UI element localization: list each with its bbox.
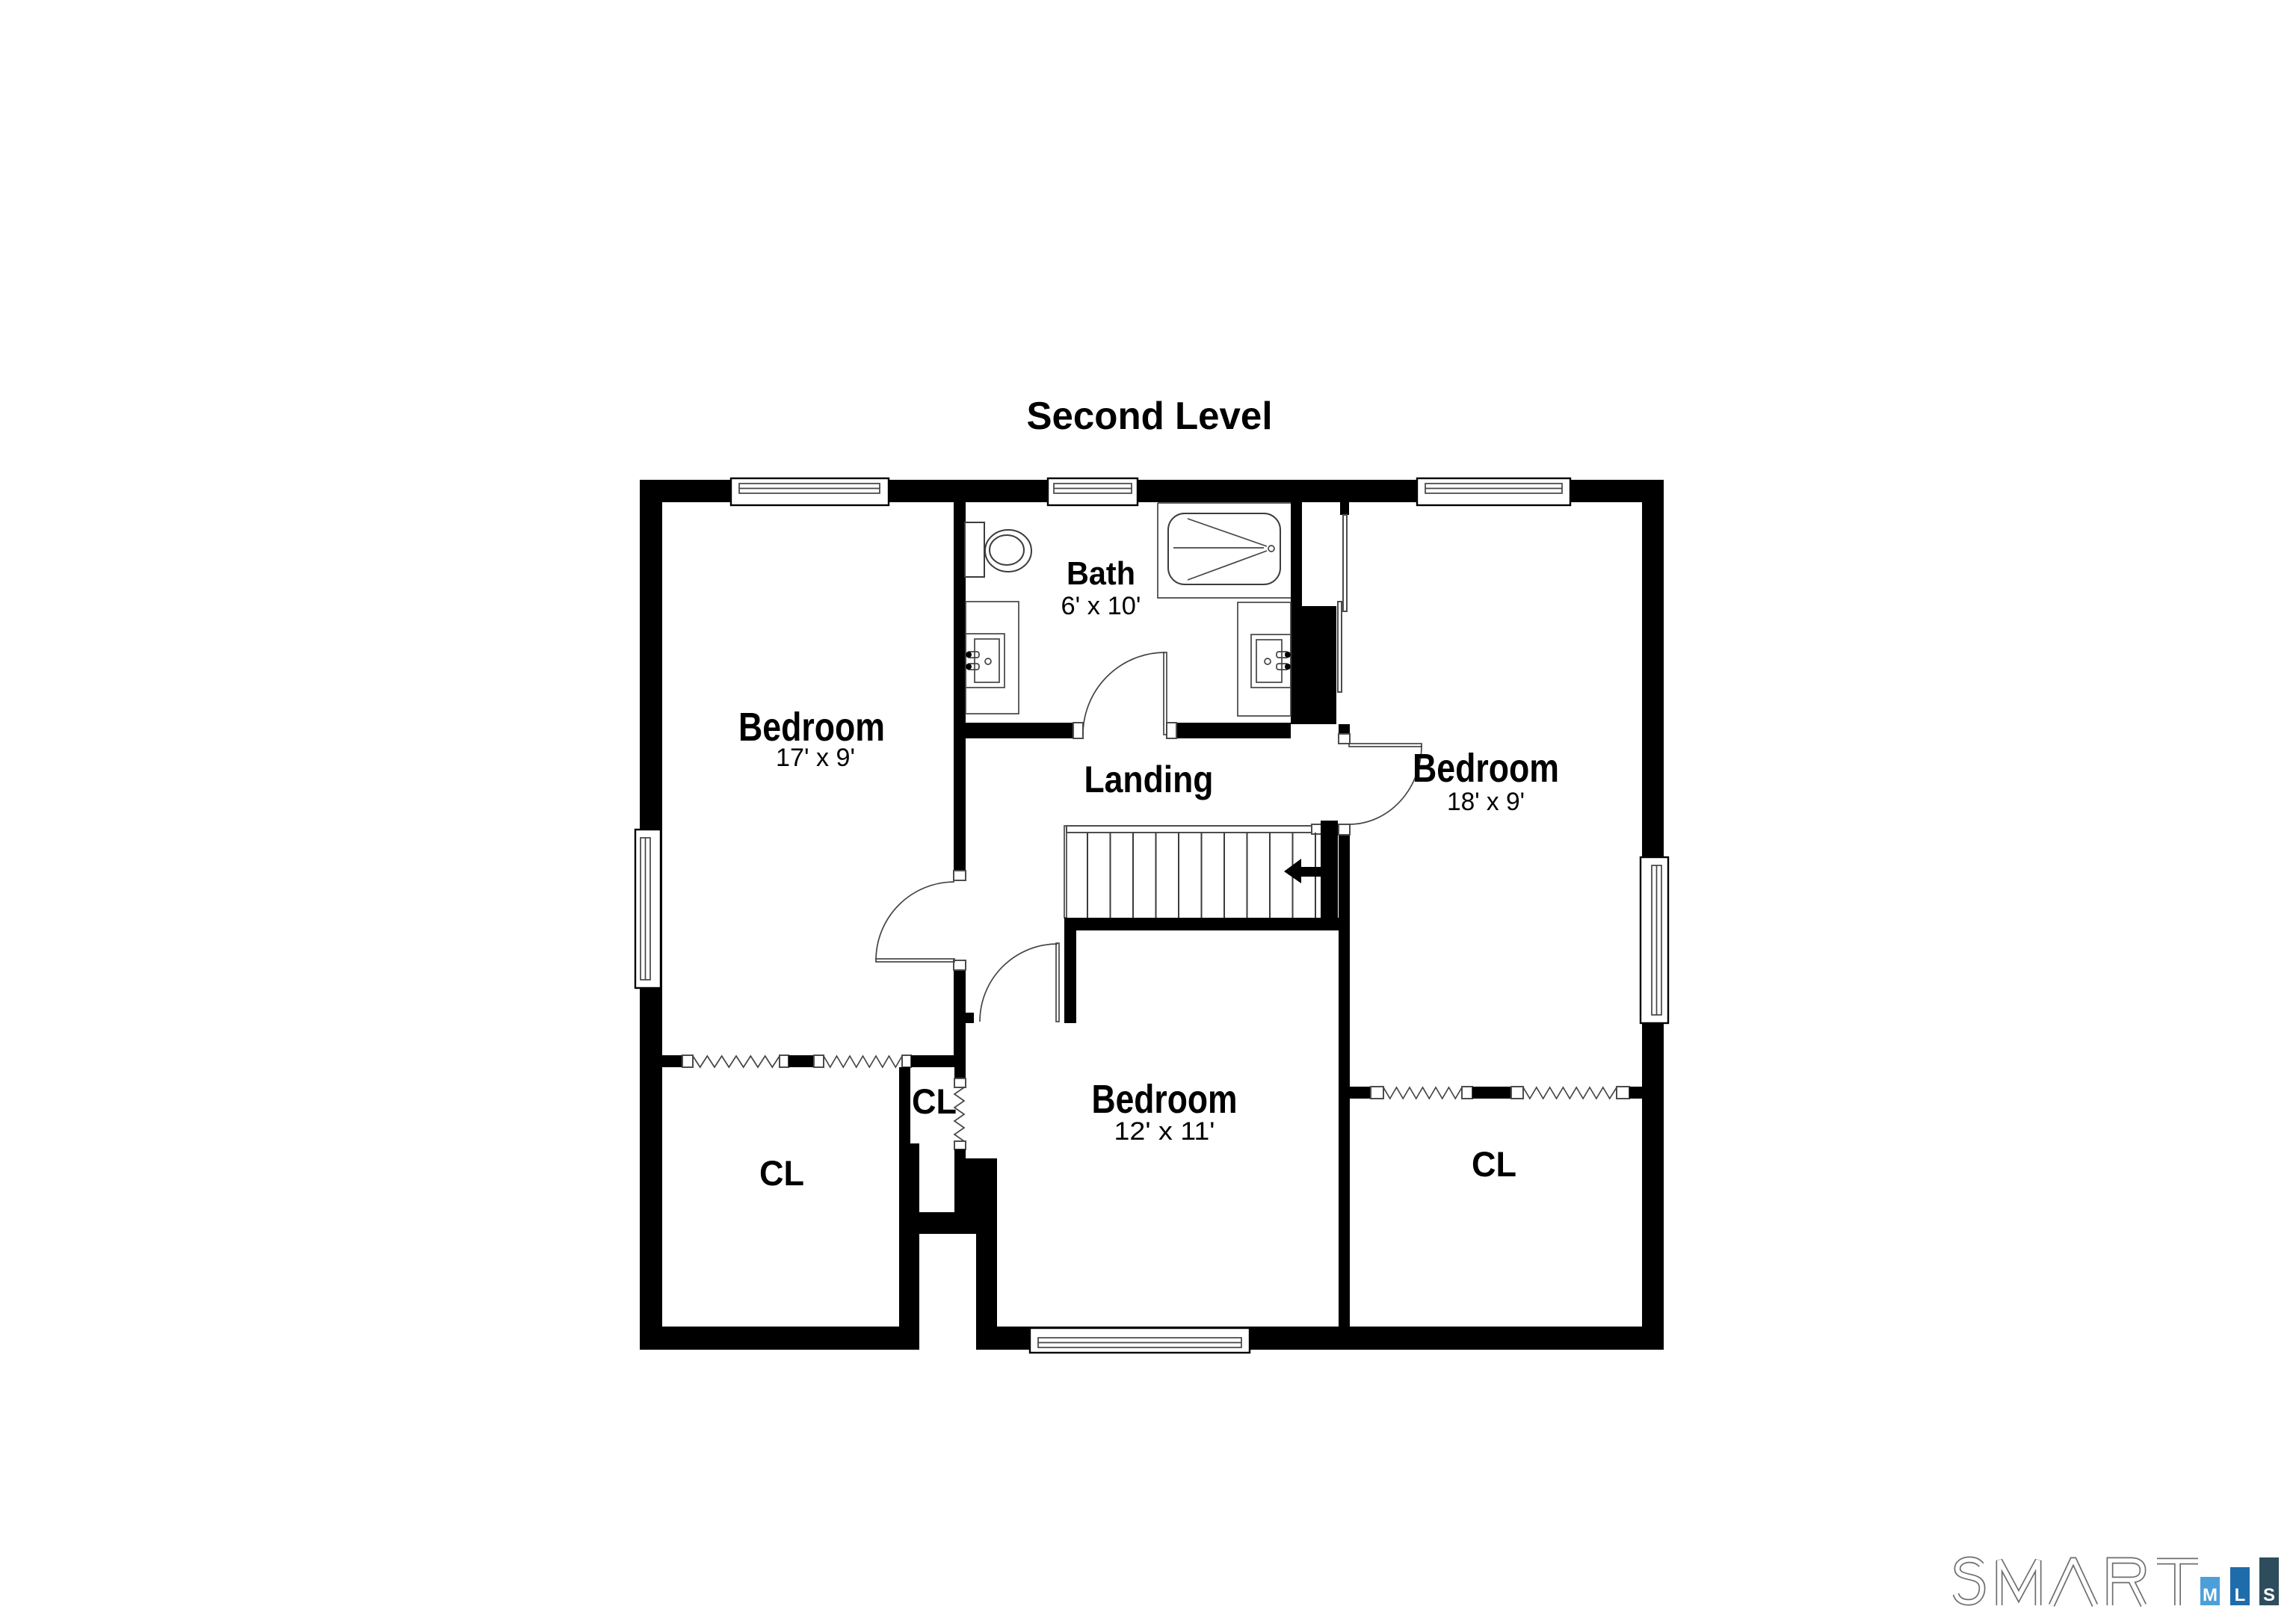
svg-text:S: S: [2263, 1585, 2275, 1605]
svg-text:CL: CL: [759, 1153, 804, 1193]
svg-text:6' x 10': 6' x 10': [1061, 592, 1141, 620]
svg-text:M: M: [2203, 1585, 2218, 1605]
svg-text:Landing: Landing: [1084, 759, 1214, 800]
svg-text:18' x 9': 18' x 9': [1447, 788, 1525, 816]
svg-text:Bedroom: Bedroom: [1413, 746, 1559, 791]
svg-text:17' x 9': 17' x 9': [776, 744, 855, 772]
svg-text:Second Level: Second Level: [1027, 395, 1273, 438]
svg-text:12' x 11': 12' x 11': [1114, 1117, 1215, 1146]
svg-text:Bedroom: Bedroom: [738, 705, 885, 750]
svg-text:CL: CL: [912, 1081, 957, 1121]
svg-text:L: L: [2235, 1585, 2246, 1605]
svg-text:Bath: Bath: [1067, 555, 1135, 592]
svg-text:CL: CL: [1472, 1144, 1516, 1184]
svg-text:Bedroom: Bedroom: [1092, 1077, 1238, 1122]
